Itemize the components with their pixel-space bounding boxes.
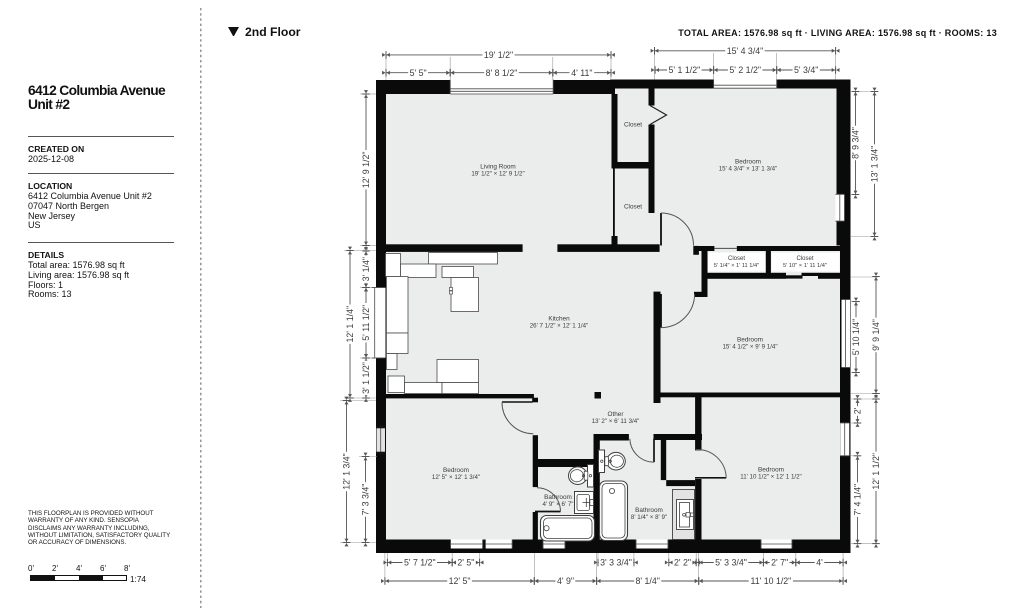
svg-text:5' 3 3/4": 5' 3 3/4" [715, 558, 747, 568]
svg-text:5' 1 1/2": 5' 1 1/2" [669, 65, 701, 75]
svg-text:Bedroom: Bedroom [735, 158, 761, 165]
svg-text:Closet: Closet [728, 256, 745, 262]
svg-text:Bathroom: Bathroom [635, 507, 663, 514]
svg-text:Closet: Closet [624, 122, 642, 129]
svg-text:5' 11 1/2": 5' 11 1/2" [361, 305, 371, 341]
svg-text:Bedroom: Bedroom [443, 467, 469, 474]
svg-text:Kitchen: Kitchen [548, 316, 570, 323]
svg-text:7' 4 1/4": 7' 4 1/4" [853, 484, 863, 516]
svg-text:5' 5": 5' 5" [410, 68, 427, 78]
svg-text:2' 2": 2' 2" [674, 558, 691, 568]
svg-text:8' 8 1/2": 8' 8 1/2" [486, 68, 518, 78]
svg-text:5' 10" × 1' 11 1/4": 5' 10" × 1' 11 1/4" [783, 263, 827, 269]
svg-text:11' 10 1/2" × 12' 1 1/2": 11' 10 1/2" × 12' 1 1/2" [740, 474, 802, 481]
svg-text:12' 5" × 12' 1 3/4": 12' 5" × 12' 1 3/4" [432, 474, 480, 481]
svg-text:15' 4 1/2" × 9' 9 1/4": 15' 4 1/2" × 9' 9 1/4" [722, 344, 777, 351]
svg-text:4' 9" × 6' 7": 4' 9" × 6' 7" [542, 501, 573, 508]
svg-text:12' 5": 12' 5" [449, 576, 471, 586]
svg-text:13' 2" × 6' 11 3/4": 13' 2" × 6' 11 3/4" [592, 418, 640, 425]
svg-text:3' 3 3/4": 3' 3 3/4" [600, 558, 632, 568]
svg-text:12' 1 3/4": 12' 1 3/4" [342, 453, 352, 490]
svg-text:Bedroom: Bedroom [737, 337, 763, 344]
svg-text:Closet: Closet [796, 256, 813, 262]
svg-text:5' 10 1/4": 5' 10 1/4" [851, 319, 861, 356]
svg-text:4' 9": 4' 9" [557, 576, 574, 586]
svg-text:5' 2 1/2": 5' 2 1/2" [729, 65, 761, 75]
svg-text:12' 1 1/4": 12' 1 1/4" [345, 306, 355, 343]
svg-text:11' 10 1/2": 11' 10 1/2" [750, 576, 791, 586]
svg-text:3' 1/4": 3' 1/4" [361, 257, 371, 281]
svg-text:Living Room: Living Room [480, 163, 516, 170]
svg-text:19' 1/2" × 12' 9 1/2": 19' 1/2" × 12' 9 1/2" [471, 170, 524, 177]
svg-text:2' 5": 2' 5" [457, 558, 474, 568]
svg-text:2' 7": 2' 7" [771, 558, 788, 568]
svg-text:5' 7 1/2": 5' 7 1/2" [404, 558, 436, 568]
svg-text:15' 4 3/4": 15' 4 3/4" [727, 46, 764, 56]
svg-text:13' 1 3/4": 13' 1 3/4" [870, 146, 880, 183]
svg-text:3' 1 1/2": 3' 1 1/2" [361, 362, 371, 394]
svg-text:15' 4 3/4" × 13' 1 3/4": 15' 4 3/4" × 13' 1 3/4" [719, 165, 778, 172]
svg-text:5' 1/4" × 1' 11 1/4": 5' 1/4" × 1' 11 1/4" [714, 263, 759, 269]
svg-text:Bedroom: Bedroom [758, 467, 784, 474]
svg-text:Closet: Closet [624, 204, 642, 211]
svg-text:9' 9 1/4": 9' 9 1/4" [871, 319, 881, 351]
svg-text:7' 3 3/4": 7' 3 3/4" [361, 484, 371, 516]
svg-text:8' 1/4" × 8' 9": 8' 1/4" × 8' 9" [631, 514, 667, 521]
svg-text:12' 9 1/2": 12' 9 1/2" [361, 151, 371, 188]
svg-text:Bathroom: Bathroom [544, 494, 572, 501]
svg-text:12' 1 1/2": 12' 1 1/2" [871, 453, 881, 490]
svg-text:4' 11": 4' 11" [571, 68, 592, 78]
svg-text:Other: Other [608, 411, 625, 418]
svg-text:5' 3/4": 5' 3/4" [794, 65, 818, 75]
svg-text:19' 1/2": 19' 1/2" [484, 50, 513, 60]
svg-text:8' 9 3/4": 8' 9 3/4" [851, 127, 861, 159]
svg-text:4': 4' [816, 558, 823, 568]
svg-text:2': 2' [853, 407, 863, 414]
svg-text:26' 7 1/2" × 12' 1 1/4": 26' 7 1/2" × 12' 1 1/4" [530, 323, 589, 330]
svg-text:8' 1/4": 8' 1/4" [636, 576, 660, 586]
